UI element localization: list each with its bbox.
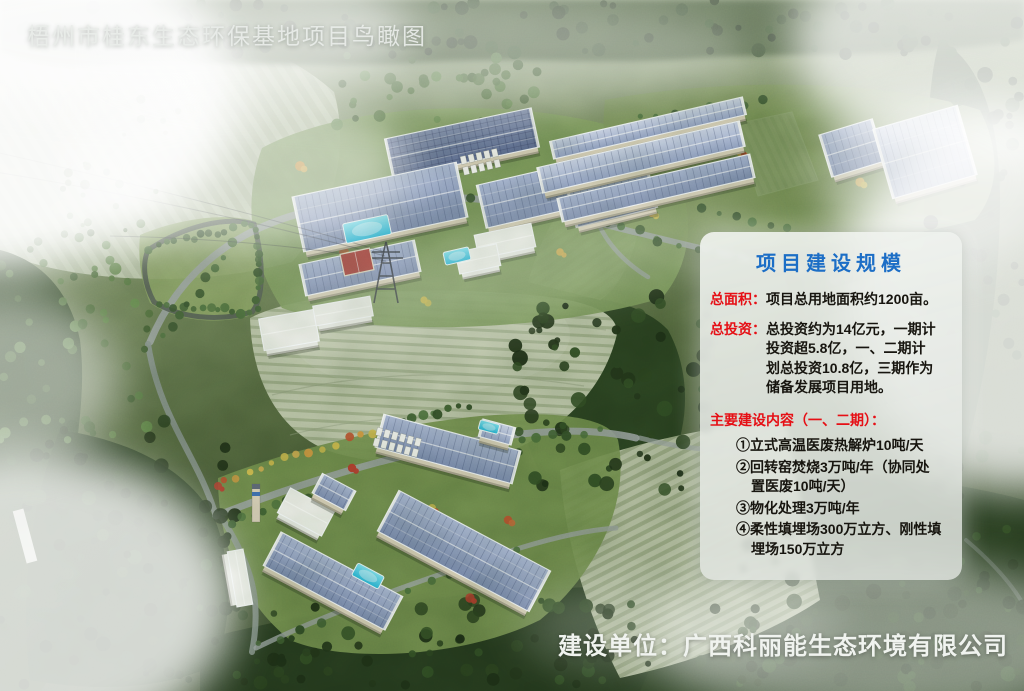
- project-scale-panel: 项目建设规模 总面积： 项目总用地面积约1200亩。 总投资： 总投资约为14亿…: [700, 232, 962, 580]
- total-area-label: 总面积：: [710, 290, 766, 310]
- construction-item: ④柔性填埋场300万立方、刚性填 埋场150万立方: [736, 520, 952, 559]
- total-investment-row: 总投资： 总投资约为14亿元，一期计 投资超5.8亿，一、二期计 划总投资10.…: [710, 320, 952, 398]
- construction-item-list: ①立式高温医废热解炉10吨/天 ②回转窑焚烧3万吨/年（协同处 置医废10吨/天…: [710, 436, 952, 559]
- construction-content-heading: 主要建设内容（一、二期）：: [710, 411, 952, 431]
- total-area-value: 项目总用地面积约1200亩。: [766, 290, 937, 310]
- builder-credit: 建设单位：广西科丽能生态环境有限公司: [558, 626, 1008, 661]
- panel-heading: 项目建设规模: [710, 251, 952, 277]
- total-investment-label: 总投资：: [710, 320, 766, 398]
- total-area-row: 总面积： 项目总用地面积约1200亩。: [710, 290, 952, 310]
- poster: 梧州市桂东生态环保基地项目鸟瞰图 项目建设规模 总面积： 项目总用地面积约120…: [0, 0, 1024, 691]
- construction-item: ③物化处理3万吨/年: [736, 499, 952, 519]
- construction-item: ②回转窑焚烧3万吨/年（协同处 置医废10吨/天）: [736, 458, 952, 497]
- poster-title: 梧州市桂东生态环保基地项目鸟瞰图: [27, 17, 427, 51]
- construction-item: ①立式高温医废热解炉10吨/天: [736, 436, 952, 456]
- total-investment-value: 总投资约为14亿元，一期计 投资超5.8亿，一、二期计 划总投资10.8亿，三期…: [766, 320, 936, 398]
